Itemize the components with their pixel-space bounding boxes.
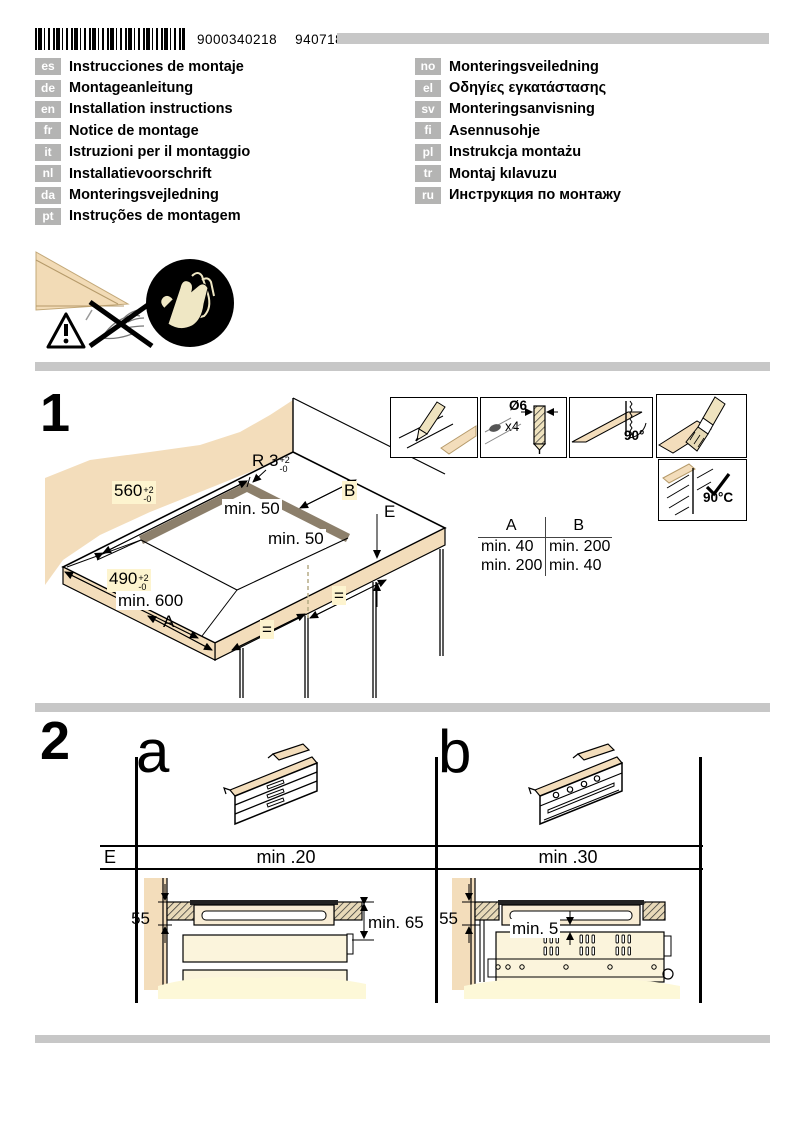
cross-section-a bbox=[138, 874, 436, 1000]
height-label: min. 600 bbox=[116, 591, 185, 610]
language-code-badge: fr bbox=[35, 122, 61, 139]
language-code-badge: ru bbox=[415, 187, 441, 204]
clearance-b-label: min. 5 bbox=[510, 919, 560, 938]
dim-e-label: E bbox=[384, 502, 395, 521]
variant-b-label: b bbox=[438, 722, 471, 782]
language-code-badge: no bbox=[415, 58, 441, 75]
cell-a: min. 200 bbox=[478, 557, 545, 576]
language-code-badge: es bbox=[35, 58, 61, 75]
depth-b-label: 55 bbox=[430, 909, 458, 928]
footer-rule bbox=[35, 1035, 770, 1043]
clearance-a-label: min. 65 bbox=[368, 913, 424, 932]
language-title: Monteringsveiledning bbox=[449, 59, 599, 75]
barcode bbox=[35, 28, 185, 50]
col-a-header: A bbox=[478, 517, 545, 537]
glue-brush-icon bbox=[657, 395, 745, 455]
language-code-badge: pt bbox=[35, 208, 61, 225]
manual-page: { "header": { "barcode_number": "9000340… bbox=[0, 0, 802, 1134]
pencil-icon bbox=[391, 398, 476, 456]
step-drill-panel: Ø6 x4 bbox=[480, 397, 567, 458]
table-rule bbox=[100, 868, 703, 870]
language-code-badge: nl bbox=[35, 165, 61, 182]
drawer-front bbox=[183, 935, 347, 962]
language-code-badge: fi bbox=[415, 122, 441, 139]
language-code-badge: el bbox=[415, 80, 441, 97]
cell-b: min. 40 bbox=[545, 557, 612, 576]
language-title: Istruzioni per il montaggio bbox=[69, 144, 250, 160]
language-title: Montaj kılavuzu bbox=[449, 166, 557, 182]
row-e-label: E bbox=[104, 847, 116, 868]
language-title: Инструкция по монтажу bbox=[449, 187, 621, 203]
hob-profile bbox=[190, 900, 338, 925]
table-row: min. 40 min. 200 bbox=[478, 538, 612, 557]
table-row: min. 200 min. 40 bbox=[478, 557, 612, 576]
language-row: deMontageanleitung bbox=[35, 77, 250, 98]
barcode-number: 9000340218 bbox=[197, 32, 277, 47]
language-row: trMontaj kılavuzu bbox=[415, 163, 621, 184]
drill-bit-icon bbox=[481, 398, 565, 455]
floor bbox=[464, 979, 680, 999]
sealed-edge-icon bbox=[659, 460, 745, 518]
section-divider bbox=[35, 703, 770, 712]
language-title: Monteringsvejledning bbox=[69, 187, 219, 203]
dim-radius-label: R 3+2-0 bbox=[252, 451, 290, 474]
step-mark-outline-panel bbox=[390, 397, 478, 458]
language-row: noMonteringsveiledning bbox=[415, 56, 621, 77]
language-row: ptInstruções de montagem bbox=[35, 206, 250, 227]
language-title: Οδηγίες εγκατάστασης bbox=[449, 80, 606, 96]
language-row: ruИнструкция по монтажу bbox=[415, 184, 621, 205]
language-row: daMonteringsvejledning bbox=[35, 184, 250, 205]
clearance-table: A B min. 40 min. 200 min. 200 min. 40 bbox=[478, 517, 612, 576]
step-saw-panel: 90° bbox=[569, 397, 653, 458]
rear-gap-label: min. 50 bbox=[222, 499, 282, 518]
step-2-number: 2 bbox=[40, 714, 70, 768]
cell-a: min. 40 bbox=[478, 538, 545, 557]
col-b-header: B bbox=[545, 517, 613, 537]
side-gap-label: min. 50 bbox=[266, 529, 326, 548]
language-list-right: noMonteringsveiledning elΟδηγίες εγκατάσ… bbox=[415, 56, 621, 206]
language-title: Instrukcja montażu bbox=[449, 144, 581, 160]
oven-section bbox=[480, 920, 673, 982]
step-temperature-panel: 90°C bbox=[658, 459, 747, 521]
dim-b-label: B bbox=[342, 481, 357, 500]
drawer-cabinet-icon bbox=[195, 742, 330, 842]
language-row: plInstrukcja montażu bbox=[415, 142, 621, 163]
language-code-badge: tr bbox=[415, 165, 441, 182]
language-row: svMonteringsanvisning bbox=[415, 99, 621, 120]
language-code-badge: de bbox=[35, 80, 61, 97]
variant-a-clearance: min .20 bbox=[138, 847, 434, 868]
dim-a-label: A bbox=[163, 612, 174, 631]
language-row: esInstrucciones de montaje bbox=[35, 56, 250, 77]
step-seal-panel bbox=[656, 394, 747, 458]
language-title: Montageanleitung bbox=[69, 80, 193, 96]
safety-pictograms bbox=[32, 246, 244, 358]
variant-b-clearance: min .30 bbox=[438, 847, 698, 868]
equal-label-1: = bbox=[260, 620, 274, 639]
dim-depth-label: 490+2-0 bbox=[107, 569, 151, 592]
floor bbox=[158, 977, 366, 999]
language-code-badge: da bbox=[35, 187, 61, 204]
sharp-edge-warning-icon bbox=[36, 252, 152, 347]
depth-a-label: 55 bbox=[122, 909, 150, 928]
language-title: Instrucciones de montaje bbox=[69, 59, 244, 75]
jigsaw-blade-icon bbox=[570, 398, 651, 455]
language-code-badge: sv bbox=[415, 101, 441, 118]
cross-out-icon bbox=[90, 302, 152, 346]
language-title: Installation instructions bbox=[69, 101, 233, 117]
cross-section-b bbox=[440, 874, 702, 1000]
language-row: fiAsennusohje bbox=[415, 120, 621, 141]
language-list-left: esInstrucciones de montaje deMontageanle… bbox=[35, 56, 250, 227]
equal-label-2: = bbox=[332, 586, 346, 605]
language-code-badge: pl bbox=[415, 144, 441, 161]
language-row: enInstallation instructions bbox=[35, 99, 250, 120]
language-title: Notice de montage bbox=[69, 123, 199, 139]
language-row: nlInstallatievoorschrift bbox=[35, 163, 250, 184]
print-code: 940718 bbox=[295, 32, 343, 47]
language-title: Instruções de montagem bbox=[69, 208, 241, 224]
wear-gloves-icon bbox=[146, 259, 234, 347]
language-title: Monteringsanvisning bbox=[449, 101, 595, 117]
checkmark-icon bbox=[707, 474, 729, 494]
header-rule bbox=[337, 33, 769, 44]
language-row: itIstruzioni per il montaggio bbox=[35, 142, 250, 163]
oven-icon bbox=[500, 742, 635, 842]
language-row: elΟδηγίες εγκατάστασης bbox=[415, 77, 621, 98]
section-divider bbox=[35, 362, 770, 371]
variant-a-label: a bbox=[136, 722, 169, 782]
warning-triangle-icon bbox=[48, 314, 84, 347]
language-title: Installatievoorschrift bbox=[69, 166, 212, 182]
clearance-table-header: A B bbox=[478, 517, 612, 538]
cell-b: min. 200 bbox=[545, 538, 612, 557]
dim-width-label: 560+2-0 bbox=[112, 481, 156, 504]
language-title: Asennusohje bbox=[449, 123, 540, 139]
language-row: frNotice de montage bbox=[35, 120, 250, 141]
language-code-badge: it bbox=[35, 144, 61, 161]
language-code-badge: en bbox=[35, 101, 61, 118]
